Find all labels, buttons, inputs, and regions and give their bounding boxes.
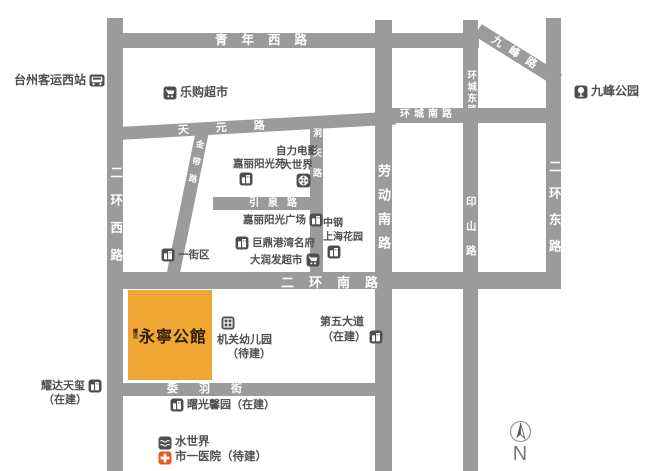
road-label-jiufeng: 九峰路 [489,35,546,76]
poi-jiguan-line1-text: 机关幼儿园 [217,334,272,347]
tree-icon [574,85,588,99]
road-label-weiyu: 委羽街 [167,384,263,395]
building-icon [239,172,253,186]
poi-yaoda-line2-text: （在建） [43,394,87,407]
poi-jiufeng-park-label: 九峰公园 [591,85,639,99]
building-icon [161,248,175,262]
poi-water-world: 水世界 [158,436,210,450]
bus-icon [89,74,105,87]
road-label-erhuan-east: 二环东路 [547,160,560,266]
road-huancheng-east: 环城东路 印山路 [463,20,478,471]
poi-jiali-plaza-label: 嘉丽阳光广场 [243,214,306,226]
poi-fifth-line2-text: （在建） [322,331,366,344]
poi-zhonggang-shanghai-garden: 中钢 上海花园 [323,218,363,259]
poi-zili-line1: 自力电影 [276,145,318,157]
poi-legou-supermarket: 乐购超市 [163,86,228,100]
road-label-huancheng-south: 环城南路 [400,110,456,120]
poi-bus-station-label: 台州客运西站 [14,74,86,88]
poi-shuguang-label: 曙光馨园（在建） [187,399,275,412]
hospital-cross-icon [158,451,172,465]
poi-jiufeng-park: 九峰公园 [574,85,639,99]
building-icon [170,398,184,412]
poi-city-first-hospital: 市一医院（待建） [158,451,267,465]
road-laodong-south: 劳动南路 [375,20,392,471]
poi-yijiequ: 一街区 [161,248,210,262]
road-label-erhuan-west: 二环西路 [109,166,122,276]
project-block-yongning-mansion: 耀 达 永寧公館 [128,290,212,380]
road-label-yinquan: 引泉路 [249,199,306,209]
compass-north-label: N [505,444,535,464]
project-name: 永寧公館 [139,323,207,347]
building-icon [309,213,323,227]
road-tianyuan: 天元路 [118,111,396,139]
poi-hospital-label: 市一医院（待建） [175,451,267,464]
building-icon [88,379,102,393]
poi-jiguan-line2-text: （待建） [227,348,271,361]
road-label-laodong-south: 劳动南路 [377,164,390,260]
building-icon [235,236,249,250]
poi-zhonggang-line2: 上海花园 [323,232,363,244]
brand-mark-bottom: 达 [133,335,138,340]
poi-zili-line2: 大世界 [281,159,313,171]
poi-juding-label: 巨鼎港湾名府 [252,237,315,249]
poi-darunfa-label: 大润发超市 [250,254,303,266]
road-label-jindai: 金带路 [186,139,205,192]
road-erhuan-east: 二环东路 [546,18,561,289]
poi-zhonggang-line1: 中钢 [323,218,343,230]
poi-shuguang-xinyuan: 曙光馨园（在建） [170,398,275,412]
poi-juding-harbor-mansion: 巨鼎港湾名府 [235,236,315,250]
brand-mark: 耀 达 [133,330,138,340]
compass-needle-icon [509,420,532,443]
cart-icon [163,86,177,100]
poi-jiali-sunshine-plaza: 嘉丽阳光广场 [243,213,323,227]
building-icon [221,316,235,330]
poi-darunfa-supermarket: 大润发超市 [250,253,320,267]
water-waves-icon [158,436,172,450]
poi-fifth-avenue-line1: 第五大道 [320,316,364,329]
building-icon [369,330,383,344]
cart-icon [306,253,320,267]
building-icon [327,245,341,259]
road-label-qingnian-west: 青年西路 [215,34,321,47]
poi-yaoda-line1-text: 耀达天玺 [41,380,85,393]
film-reel-icon [296,173,311,188]
poi-yaoda-tianxi-line1: 耀达天玺 [41,379,102,393]
poi-jiguan-kindergarten-line2: （待建） [227,348,271,361]
road-yinquan: 引泉路 [213,197,323,210]
poi-fifth-avenue-line2: （在建） [322,330,383,344]
poi-yaoda-tianxi-line2: （在建） [43,394,87,407]
poi-jiguan-kindergarten-line1: 机关幼儿园 [217,334,272,347]
poi-yijiequ-label: 一街区 [178,249,210,261]
poi-fifth-line1-text: 第五大道 [320,316,364,329]
poi-legou-label: 乐购超市 [180,86,228,100]
poi-zili-cinema: 自力电影 大世界 [275,145,319,188]
road-label-yinshan: 印山路 [465,196,476,270]
road-label-erhuan-south: 二环南路 [281,276,393,289]
poi-water-world-label: 水世界 [175,436,210,449]
location-map: 二环西路 青年西路 劳动南路 环城东路 印山路 二环东路 九峰路 环城南路 天元… [0,0,659,471]
poi-bus-station: 台州客运西站 [14,74,105,88]
compass: N [505,420,535,464]
road-erhuan-west: 二环西路 [107,18,123,471]
